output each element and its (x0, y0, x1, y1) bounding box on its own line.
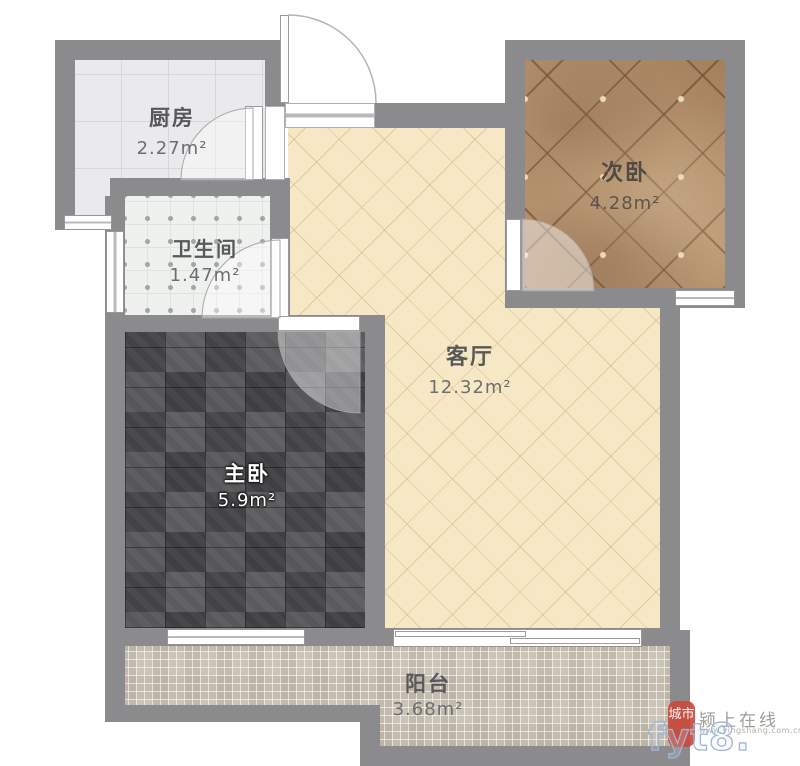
window-kitchen (64, 215, 112, 230)
label-balcony-name: 阳台 (393, 668, 464, 698)
wall-living-right (660, 300, 680, 640)
label-bedroom1-area: 5.9m² (218, 490, 276, 511)
label-living-name: 客厅 (428, 339, 511, 371)
sliding-door-panel-left (395, 631, 526, 637)
label-living-area: 12.32m² (428, 377, 511, 398)
label-bathroom-area: 1.47m² (170, 265, 241, 286)
label-balcony: 阳台 3.68m² (393, 668, 464, 720)
kitchen-door-leaf (245, 106, 263, 180)
label-bedroom2: 次卧 4.28m² (590, 155, 661, 214)
wall-bedroom2-top (505, 40, 745, 60)
label-bathroom-name: 卫生间 (170, 233, 241, 262)
sliding-door-balcony (393, 629, 642, 647)
label-bedroom2-name: 次卧 (590, 155, 661, 187)
label-bedroom2-area: 4.28m² (590, 193, 661, 214)
master-door-leaf (278, 316, 360, 331)
label-kitchen-area: 2.27m² (137, 138, 208, 159)
label-living: 客厅 12.32m² (428, 339, 511, 398)
bedroom2-door-leaf (506, 219, 521, 291)
label-balcony-area: 3.68m² (393, 699, 464, 720)
label-bedroom1-name: 主卧 (218, 458, 276, 488)
label-kitchen: 厨房 2.27m² (137, 102, 208, 159)
kitchen-door-opening (265, 106, 285, 180)
wall-master-right (365, 315, 385, 645)
wall-balcony-bottom-right (360, 746, 690, 766)
window-bathroom (106, 231, 124, 313)
watermark-url-large: fyt8. cn (648, 716, 800, 766)
wall-bathroom-top (110, 178, 290, 196)
sliding-door-panel-right (510, 638, 640, 644)
wall-bedroom2-right (725, 40, 745, 308)
wall-kitchen-left (55, 40, 75, 230)
entry-door-opening (285, 103, 375, 128)
entry-door-leaf (280, 15, 289, 103)
bathroom-door-leaf (271, 238, 289, 318)
label-kitchen-name: 厨房 (137, 102, 208, 132)
label-bathroom: 卫生间 1.47m² (170, 233, 241, 286)
wall-balcony-bottom-left (105, 705, 380, 722)
window-bedroom2 (675, 290, 735, 306)
window-master-balcony (167, 629, 305, 645)
floor-plan: 厨房 2.27m² 卫生间 1.47m² 次卧 4.28m² 客厅 12.32m… (0, 0, 800, 766)
wall-kitchen-top (55, 40, 285, 60)
label-bedroom1: 主卧 5.9m² (218, 458, 276, 511)
